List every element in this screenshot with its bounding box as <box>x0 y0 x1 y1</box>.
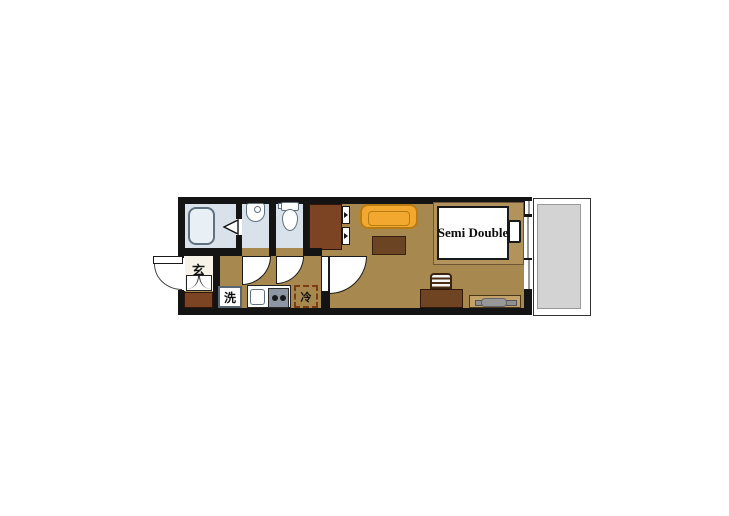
glass-icon <box>527 217 529 258</box>
shoe-cabinet <box>184 292 213 308</box>
pillow <box>508 220 521 243</box>
balcony-window-lower <box>524 260 532 289</box>
refrigerator-space: 冷 <box>294 285 318 308</box>
living-door-leaf <box>321 256 329 294</box>
hall-wall-segment <box>271 248 276 256</box>
low-table <box>372 236 406 255</box>
burner-icon <box>280 295 286 301</box>
stove <box>268 288 289 308</box>
closet-door-icon <box>344 212 348 218</box>
closet-door-bottom <box>342 227 350 245</box>
glass-icon <box>528 201 530 214</box>
washing-machine-label: 洗 <box>224 289 236 306</box>
small-window <box>525 201 532 214</box>
kitchen-wall-stub <box>321 291 330 308</box>
floor-plan-image: 玄 洗 冷 Semi Double <box>0 0 729 516</box>
unit-outline: 玄 洗 冷 Semi Double <box>178 197 532 315</box>
burner-icon <box>272 295 278 301</box>
glass-icon <box>528 260 530 289</box>
bed-size-label: Semi Double <box>438 225 508 241</box>
faucet-icon <box>254 206 261 213</box>
bathroom-door-icon <box>222 218 240 236</box>
hall-wall-segment <box>303 248 322 256</box>
bed: Semi Double <box>437 206 509 260</box>
closet <box>309 204 342 250</box>
shoe-door-right-icon <box>199 276 211 289</box>
washbasin <box>246 203 265 222</box>
refrigerator-label: 冷 <box>301 289 312 305</box>
front-door-swing <box>154 264 182 290</box>
balcony-window-upper <box>524 217 532 258</box>
front-door-leaf <box>153 256 183 264</box>
shoe-door-left-icon <box>187 276 199 289</box>
kitchen-sink <box>250 289 265 305</box>
sofa-seat <box>368 211 410 226</box>
shoe-cabinet-doors-icon <box>186 275 212 291</box>
closet-door-icon <box>344 233 348 239</box>
hall-wall-segment <box>185 248 241 256</box>
washing-machine: 洗 <box>218 286 242 308</box>
desk <box>420 289 463 308</box>
balcony-floor <box>537 204 581 309</box>
balcony <box>533 198 591 316</box>
tv-base <box>481 298 507 307</box>
sofa <box>360 204 418 229</box>
closet-door-top <box>342 206 350 224</box>
chair <box>430 273 452 290</box>
bathtub <box>188 207 215 245</box>
